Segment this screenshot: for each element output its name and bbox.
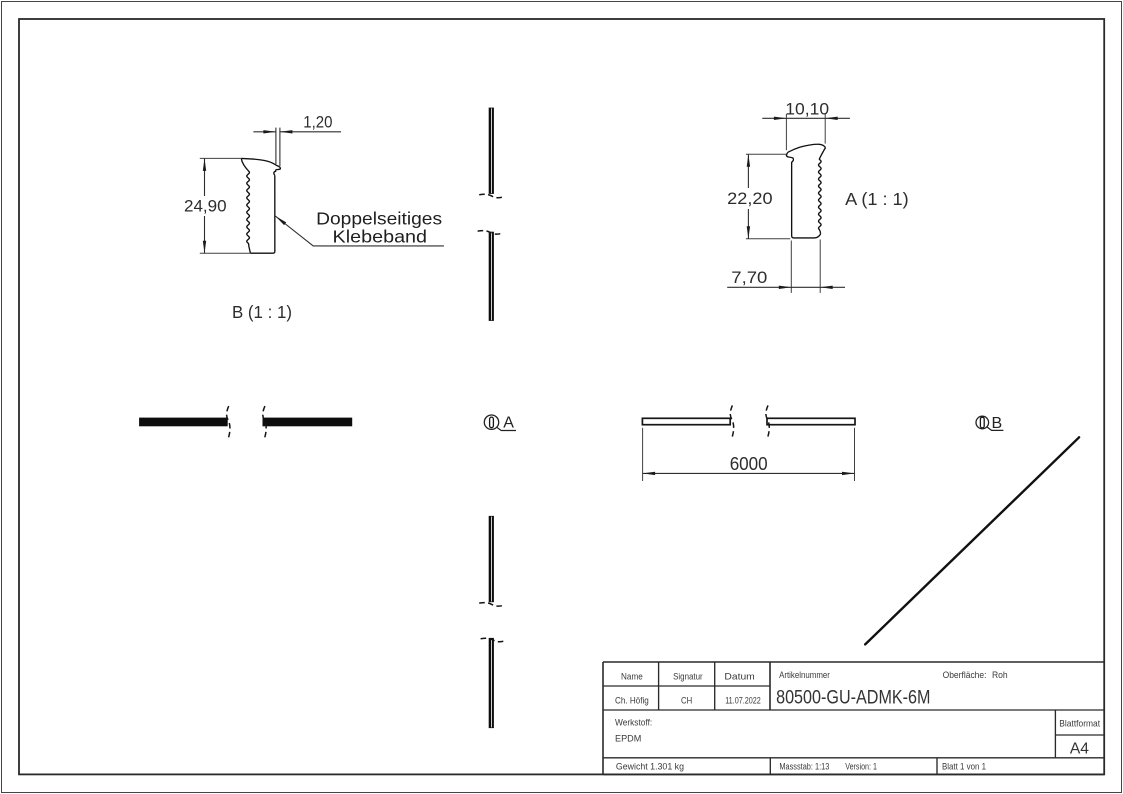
- svg-text:10,10: 10,10: [785, 99, 829, 118]
- svg-text:Signatur: Signatur: [673, 671, 703, 681]
- svg-text:Version: 1: Version: 1: [845, 762, 877, 772]
- svg-text:Klebeband: Klebeband: [333, 226, 428, 246]
- svg-text:B: B: [991, 415, 1002, 432]
- svg-text:1,20: 1,20: [303, 112, 332, 131]
- svg-text:Artikelnummer: Artikelnummer: [779, 670, 830, 680]
- svg-text:24,90: 24,90: [184, 197, 227, 216]
- svg-text:22,20: 22,20: [727, 189, 772, 208]
- svg-text:Doppelseitiges: Doppelseitiges: [316, 208, 442, 228]
- svg-text:Massstab: 1:13: Massstab: 1:13: [779, 762, 829, 772]
- svg-text:7,70: 7,70: [731, 268, 767, 287]
- svg-text:A4: A4: [1070, 740, 1089, 757]
- svg-text:Blattformat: Blattformat: [1059, 719, 1100, 729]
- svg-text:A: A: [503, 415, 514, 432]
- svg-text:80500-GU-ADMK-6M: 80500-GU-ADMK-6M: [776, 686, 930, 708]
- svg-text:Ch. Höfig: Ch. Höfig: [615, 696, 649, 706]
- svg-text:Werkstoff:: Werkstoff:: [615, 717, 652, 727]
- svg-text:Gewicht 1.301 kg: Gewicht 1.301 kg: [616, 762, 684, 772]
- svg-text:Oberfläche:: Oberfläche:: [943, 670, 987, 680]
- svg-text:Datum: Datum: [724, 671, 754, 681]
- svg-text:Blatt 1 von 1: Blatt 1 von 1: [942, 762, 986, 772]
- svg-text:Roh: Roh: [992, 670, 1008, 680]
- svg-text:B (1 : 1): B (1 : 1): [232, 302, 292, 322]
- svg-text:11.07.2022: 11.07.2022: [725, 696, 761, 706]
- svg-text:Name: Name: [621, 671, 643, 681]
- svg-text:6000: 6000: [730, 454, 768, 474]
- svg-text:EPDM: EPDM: [615, 733, 641, 743]
- svg-text:CH: CH: [681, 696, 692, 706]
- svg-text:A (1 : 1): A (1 : 1): [845, 189, 909, 209]
